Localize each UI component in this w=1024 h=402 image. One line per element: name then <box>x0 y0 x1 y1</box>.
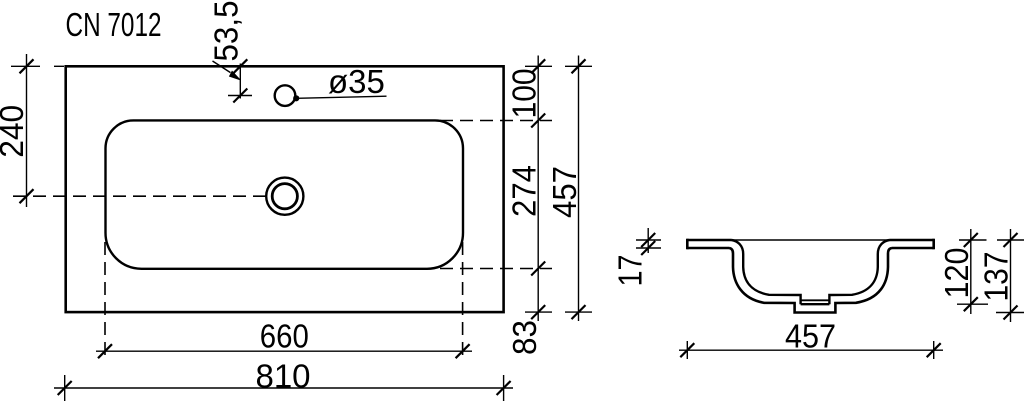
svg-text:137: 137 <box>978 252 1015 302</box>
svg-text:457: 457 <box>785 318 836 355</box>
svg-text:CN 7012: CN 7012 <box>66 6 162 43</box>
svg-text:120: 120 <box>938 248 975 299</box>
svg-text:660: 660 <box>260 318 309 355</box>
svg-text:53,5: 53,5 <box>207 1 244 62</box>
svg-text:17: 17 <box>612 255 649 287</box>
svg-text:810: 810 <box>255 358 310 395</box>
svg-text:457: 457 <box>546 166 583 218</box>
svg-text:274: 274 <box>506 165 543 217</box>
svg-text:ø35: ø35 <box>328 63 385 100</box>
svg-text:100: 100 <box>506 68 543 118</box>
svg-text:240: 240 <box>0 105 30 158</box>
svg-text:83: 83 <box>506 320 543 355</box>
